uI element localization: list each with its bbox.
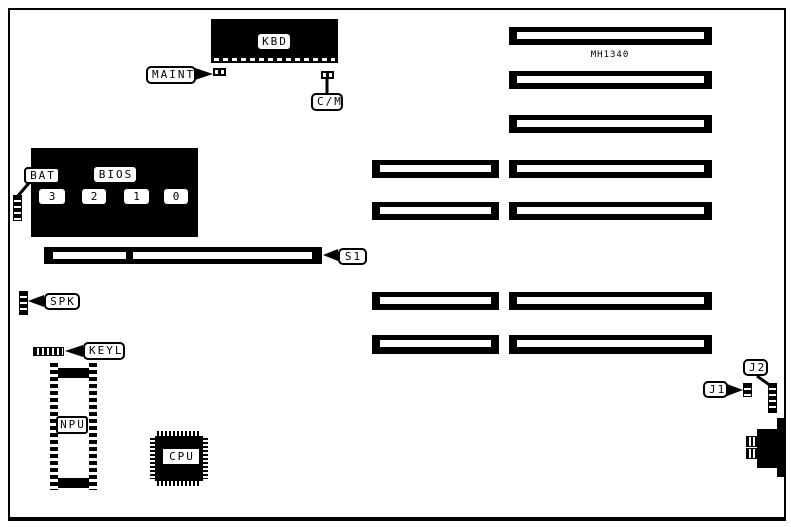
- j2-connector: [768, 383, 777, 413]
- keyboard-port-body: [757, 429, 778, 468]
- bios-chip-2: 2: [82, 189, 106, 204]
- bat-callout: BAT: [24, 167, 60, 184]
- expansion-slot-ext-5: [372, 202, 499, 220]
- bios-chip-3: 3: [39, 189, 65, 204]
- keyl-callout: KEYL: [83, 342, 125, 360]
- expansion-slot-6: [509, 292, 712, 310]
- npu-socket-bottom-bar: [58, 478, 89, 488]
- model-number: MH1340: [582, 50, 638, 61]
- kbd-label: KBD: [258, 34, 290, 49]
- spk-callout: SPK: [44, 293, 80, 310]
- expansion-slot-5: [509, 202, 712, 220]
- s1-slot-notch-2: [133, 252, 312, 259]
- j1-callout: J1: [703, 381, 728, 398]
- kbd-pin-row: [214, 58, 335, 61]
- expansion-slot-ext-6: [372, 292, 499, 310]
- keyboard-port-pin-2: [746, 448, 758, 459]
- battery-connector: [13, 195, 22, 221]
- bios-chip-0: 0: [164, 189, 188, 204]
- j1-arrow-icon: [727, 384, 743, 396]
- keyboard-port-pin-1: [746, 436, 758, 447]
- npu-pin-row-right: [89, 363, 97, 490]
- expansion-slot-ext-7: [372, 335, 499, 354]
- cpu-pins-bottom: [157, 481, 201, 486]
- s1-slot: [44, 247, 322, 264]
- s1-slot-notch-1: [53, 252, 126, 259]
- npu-label: NPU: [56, 416, 88, 434]
- maint-arrow-icon: [195, 68, 213, 80]
- expansion-slot-4: [509, 160, 712, 178]
- s1-arrow-icon: [323, 249, 338, 261]
- keyboard-port-edge: [777, 418, 786, 477]
- expansion-slot-ext-4: [372, 160, 499, 178]
- expansion-slot-2: [509, 71, 712, 89]
- spk-arrow-icon: [28, 295, 44, 307]
- npu-socket-top-bar: [58, 368, 89, 378]
- bios-label: BIOS: [94, 167, 136, 182]
- expansion-slot-7: [509, 335, 712, 354]
- maint-callout: MAINT: [146, 66, 196, 84]
- s1-callout: S1: [338, 248, 367, 265]
- keylock-connector: [33, 347, 64, 356]
- speaker-connector: [19, 291, 28, 315]
- expansion-slot-1: [509, 27, 712, 45]
- bios-chip-1: 1: [124, 189, 149, 204]
- cpu-pins-right: [203, 438, 208, 479]
- keyl-arrow-icon: [65, 345, 83, 357]
- cm-jumper-connector: [321, 71, 334, 79]
- cm-callout: C/M: [311, 93, 343, 111]
- j1-connector: [743, 383, 752, 397]
- expansion-slot-3: [509, 115, 712, 133]
- j2-callout: J2: [743, 359, 768, 376]
- maint-jumper-connector: [213, 68, 226, 76]
- cpu-label: CPU: [163, 449, 199, 464]
